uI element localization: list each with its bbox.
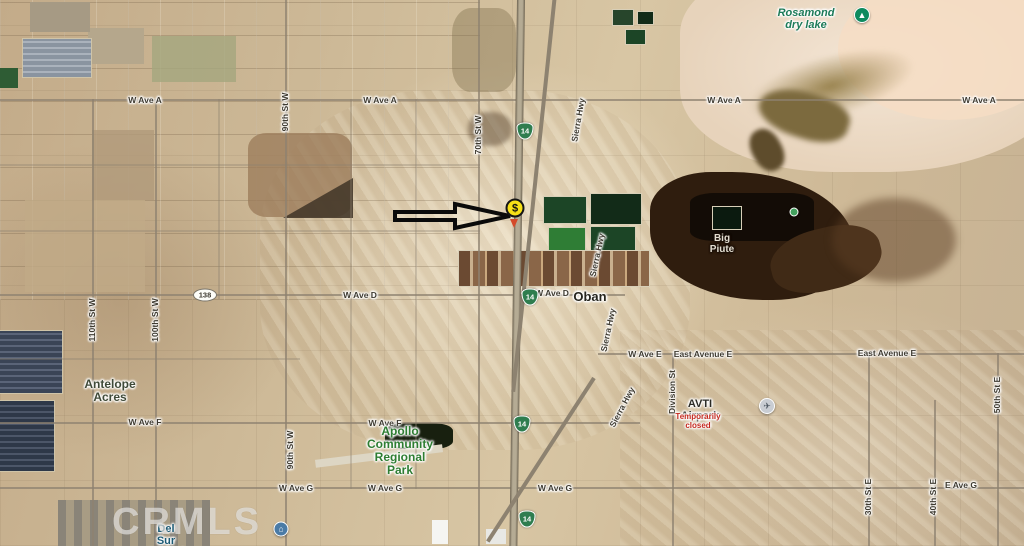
- road-40th-e: [934, 400, 936, 546]
- road-minor: [0, 358, 300, 360]
- place-label: Antelope Acres: [84, 378, 135, 404]
- airport-icon: ✈: [759, 398, 775, 414]
- road-label: W Ave G: [279, 483, 313, 493]
- road-label: W Ave G: [368, 483, 402, 493]
- road-70th-w: [478, 0, 480, 546]
- road-label: W Ave D: [535, 288, 569, 298]
- road-label: 90th St W: [285, 431, 295, 470]
- road-label: W Ave G: [538, 483, 572, 493]
- rocky-butte: [832, 198, 956, 282]
- place-label: Rosamond dry lake: [778, 8, 835, 32]
- place-label: Oban: [573, 290, 606, 304]
- white-building: [432, 520, 448, 544]
- road-label: 100th St W: [150, 298, 160, 341]
- green-field-edge: [0, 68, 18, 88]
- satellite-map: W Ave AW Ave AW Ave AW Ave AW Ave DW Ave…: [0, 0, 1024, 546]
- road-label: W Ave A: [707, 95, 741, 105]
- road-label: W Ave A: [962, 95, 996, 105]
- farm-field: [637, 11, 654, 25]
- place-label: Apollo Community Regional Park: [367, 425, 433, 477]
- farm-field: [590, 193, 642, 225]
- road-label: 30th St E: [863, 479, 873, 515]
- place-label: Temporarily closed: [675, 413, 720, 430]
- road-label: W Ave D: [343, 290, 377, 300]
- feedlot-parcels: [458, 250, 650, 287]
- pointer-arrow: [393, 201, 515, 231]
- route-shield-138: 138: [193, 289, 217, 302]
- terrain-patch: [30, 2, 90, 32]
- road-label: 70th St W: [473, 116, 483, 155]
- road-minor: [0, 164, 480, 166]
- road-label: W Ave A: [128, 95, 162, 105]
- farm-field: [625, 29, 646, 45]
- park-dot-icon: [790, 208, 799, 217]
- solar-array: [0, 400, 55, 472]
- road-minor: [218, 99, 220, 299]
- park-icon: ▲: [854, 7, 870, 23]
- farm-field: [543, 196, 587, 224]
- road-label: W Ave F: [129, 417, 162, 427]
- farm-field: [612, 9, 634, 26]
- road-label: 50th St E: [992, 377, 1002, 413]
- road-label: Division St: [667, 370, 677, 414]
- road-label: W Ave A: [363, 95, 397, 105]
- farm-field: [712, 206, 742, 230]
- road-label: E Ave G: [945, 480, 977, 490]
- farm-field: [548, 227, 586, 252]
- road-label: 110th St W: [87, 299, 97, 342]
- solar-array: [22, 38, 92, 78]
- terrain-patch: [152, 36, 236, 82]
- road-label: 90th St W: [280, 93, 290, 132]
- place-label: Big Piute: [710, 234, 734, 256]
- road-label: East Avenue E: [674, 349, 732, 359]
- terrain-patch: [25, 200, 145, 292]
- terrain-patch: [452, 8, 516, 92]
- terrain-patch: [88, 28, 144, 64]
- road-label: 40th St E: [928, 479, 938, 515]
- subject-price-pin: $: [506, 199, 525, 218]
- rocky-butte: [690, 193, 814, 241]
- crmls-watermark: CRMLS: [112, 501, 262, 544]
- road-label: East Avenue E: [858, 348, 916, 358]
- road-ave-f: [0, 422, 640, 424]
- road-30th-e: [868, 353, 870, 546]
- road-label: W Ave E: [628, 349, 661, 359]
- road-ave-e: [598, 353, 1024, 355]
- school-icon: ⌂: [274, 522, 289, 537]
- solar-array: [0, 330, 63, 394]
